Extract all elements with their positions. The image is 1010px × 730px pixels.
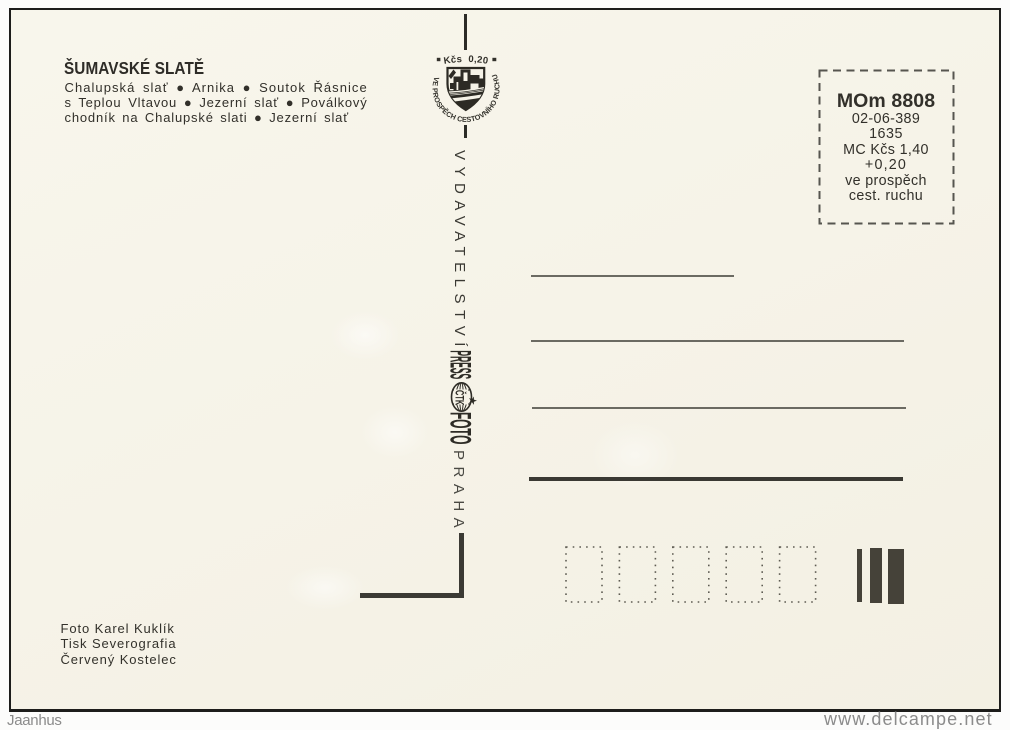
svg-text:★: ★ — [466, 396, 478, 406]
svg-text:FOTO: FOTO — [449, 412, 478, 444]
svg-text:Kčs 0,20: Kčs 0,20 — [443, 54, 489, 67]
svg-text:ČTK: ČTK — [452, 390, 466, 406]
svg-text:PRESS: PRESS — [449, 350, 478, 379]
